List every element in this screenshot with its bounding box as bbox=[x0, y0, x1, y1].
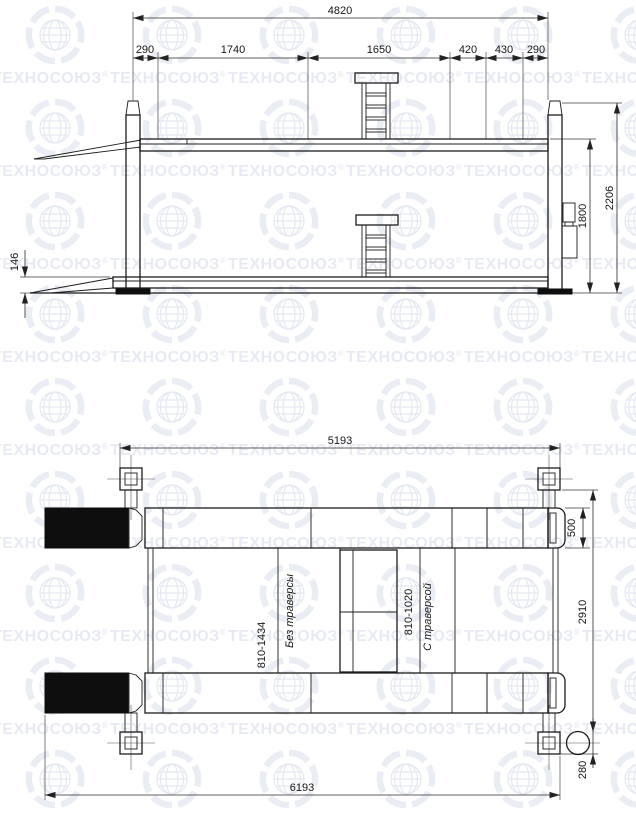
runway-top-end-cap bbox=[548, 508, 565, 548]
dim-runway-width: 500 bbox=[566, 519, 578, 537]
technical-drawing-sheet: ТЕХНОСОЮЗ®ТЕХНОСОЮЗ®ТЕХНОСОЮЗ®ТЕХНОСОЮЗ®… bbox=[0, 0, 636, 813]
lift-structure-elevation bbox=[30, 73, 577, 294]
drive-on-ramp-lowered bbox=[30, 278, 113, 293]
runway-bottom-end-cap bbox=[548, 673, 565, 713]
dim-seg-420: 420 bbox=[459, 44, 477, 56]
tread-plate-hatch bbox=[487, 673, 523, 713]
ramp-black-bottom bbox=[45, 673, 128, 713]
range-with-traverse: 810-1020 bbox=[403, 589, 415, 636]
right-post-base bbox=[538, 289, 572, 294]
runway-top bbox=[45, 508, 565, 548]
dim-posts-span: 5193 bbox=[328, 435, 352, 447]
dim-seg-430: 430 bbox=[495, 44, 513, 56]
platform-raised bbox=[34, 139, 548, 159]
elevation-dimension-lines bbox=[25, 18, 617, 318]
dim-seg-290b: 290 bbox=[527, 44, 545, 56]
cross-members bbox=[148, 548, 558, 673]
power-unit bbox=[562, 203, 577, 258]
dim-track-width: 2910 bbox=[577, 600, 589, 624]
tread-plate-hatch bbox=[163, 673, 311, 713]
range-no-traverse: 810-1434 bbox=[256, 622, 268, 669]
plan-view: 5193 500 2910 280 6193 bbox=[0, 400, 636, 813]
plan-extension-lines bbox=[45, 443, 600, 800]
left-post-base bbox=[116, 289, 150, 294]
tread-plate-hatch bbox=[452, 673, 487, 713]
dim-seg-1740: 1740 bbox=[221, 44, 245, 56]
dim-height-total: 2206 bbox=[604, 186, 616, 210]
right-post bbox=[538, 101, 572, 294]
tread-plate-hatch bbox=[487, 508, 523, 548]
dim-min-height: 146 bbox=[9, 253, 21, 271]
dim-seg-1650: 1650 bbox=[367, 44, 391, 56]
safety-ladder-upper bbox=[355, 73, 398, 139]
dim-overall-length: 6193 bbox=[290, 782, 314, 794]
plan-posts bbox=[120, 468, 590, 755]
dim-height-platform: 1800 bbox=[577, 204, 589, 228]
drive-on-ramp-raised bbox=[34, 140, 141, 159]
traverse-jack-beam bbox=[340, 550, 397, 672]
tread-plate-hatch bbox=[452, 508, 487, 548]
ramp-black-top bbox=[45, 508, 128, 548]
platform-lowered bbox=[30, 277, 548, 293]
dim-seg-290a: 290 bbox=[136, 44, 154, 56]
left-post bbox=[116, 101, 150, 294]
elevation-view: 4820 290 1740 1650 420 430 290 2206 1800… bbox=[0, 0, 636, 400]
label-no-traverse: Без траверсы bbox=[284, 574, 296, 648]
tread-plate-hatch bbox=[163, 508, 311, 548]
dim-motor-width: 280 bbox=[577, 761, 589, 779]
runway-bottom bbox=[45, 673, 565, 713]
dim-total-width: 4820 bbox=[328, 5, 352, 17]
safety-ladder-lower bbox=[356, 215, 398, 277]
label-with-traverse: С траверсой bbox=[422, 583, 434, 651]
